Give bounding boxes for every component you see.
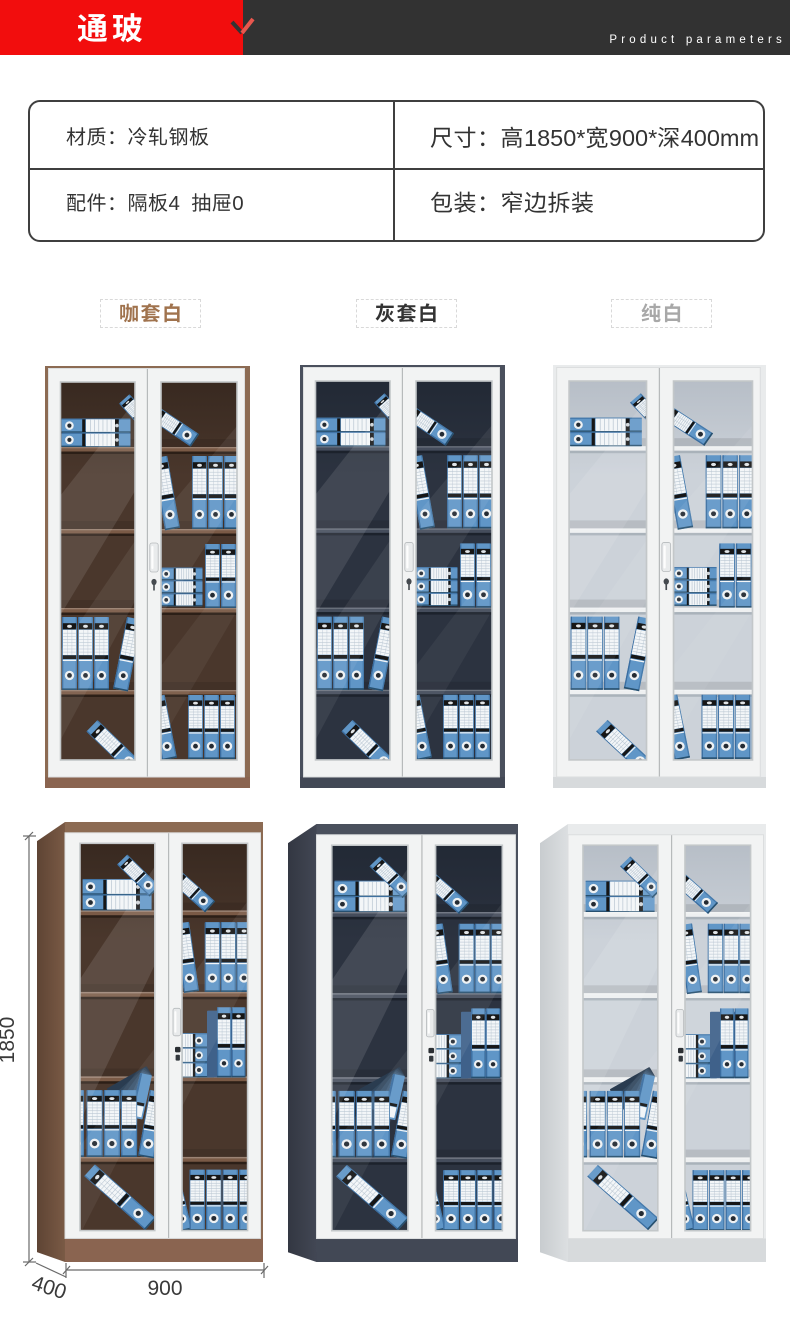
svg-text:900: 900 [147, 1277, 182, 1300]
svg-text:400: 400 [29, 1271, 69, 1304]
svg-text:1850: 1850 [0, 1017, 19, 1064]
